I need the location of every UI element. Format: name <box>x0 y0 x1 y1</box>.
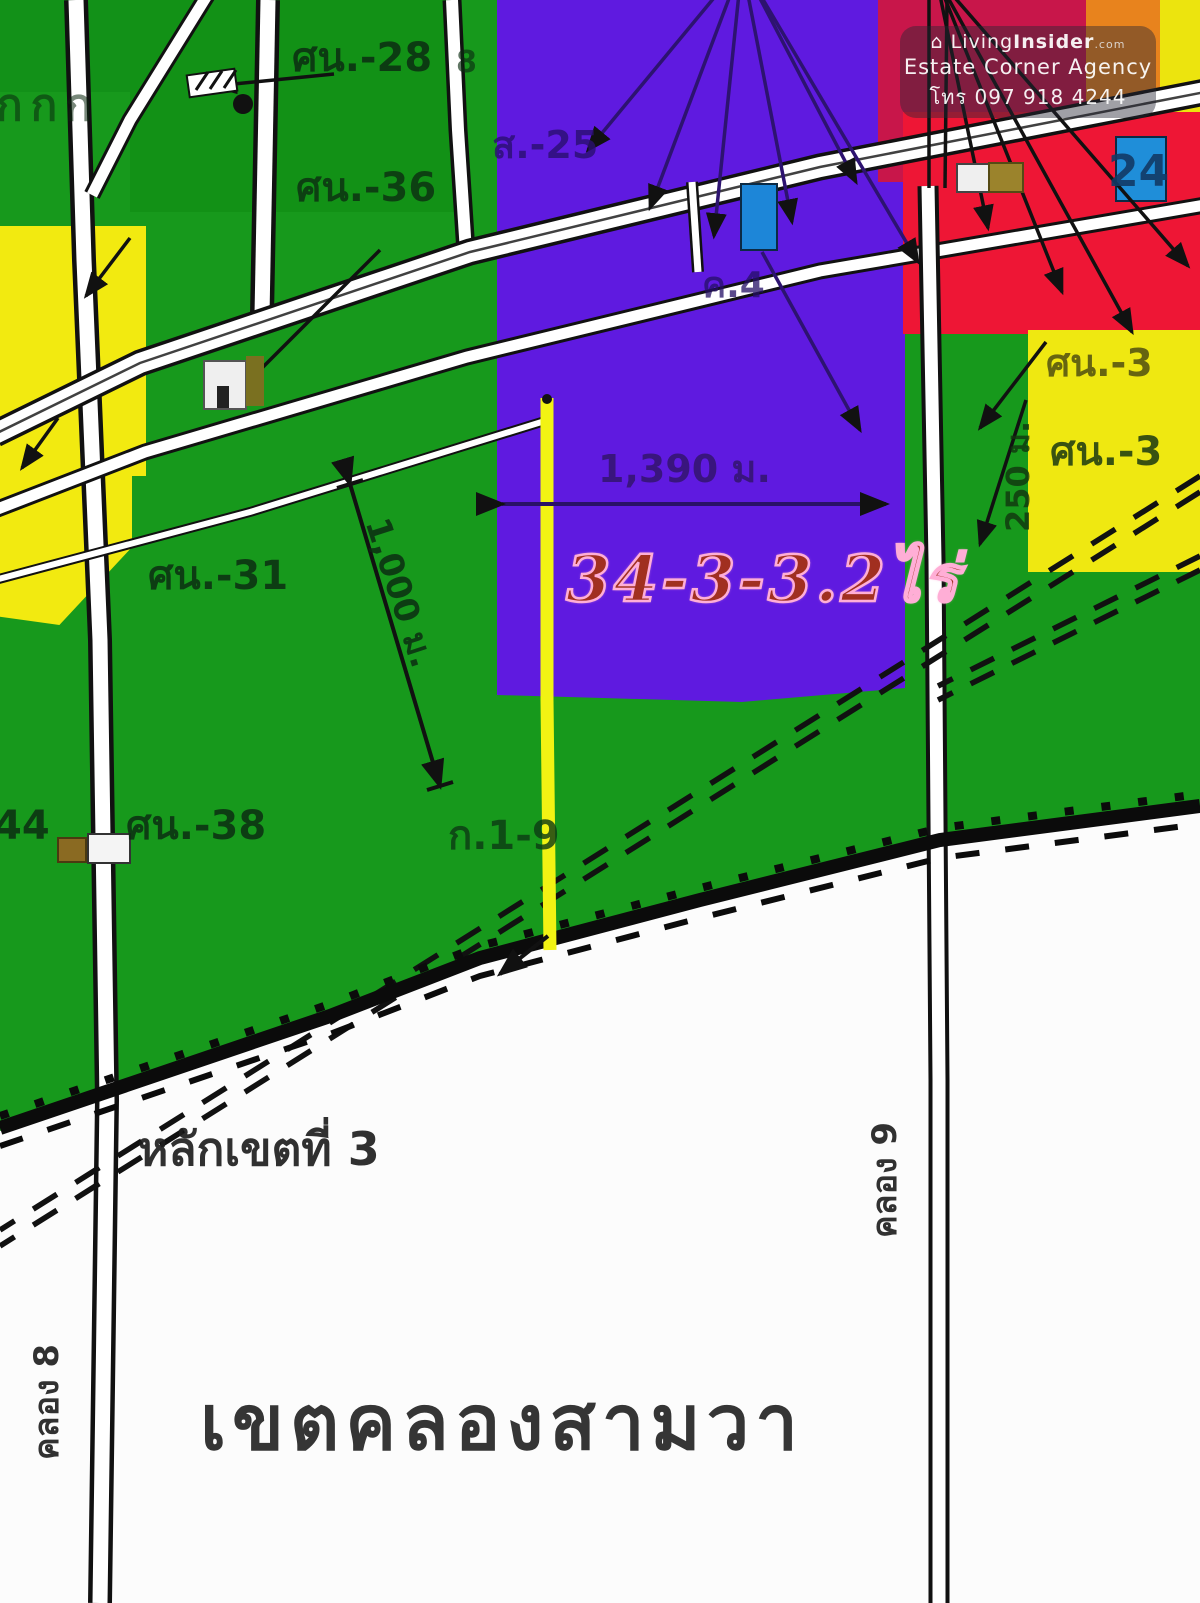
label-district: เขตคลองสามวา <box>200 1385 804 1461</box>
watermark-agency: Estate Corner Agency <box>904 55 1152 79</box>
label-sn-3-green: ศน.-3 <box>1050 432 1162 472</box>
zoning-map: กกกศน.-28ศน.-368ส.-25ค.4241,390 ม.ศน.-31… <box>0 0 1200 1603</box>
label-sn-38: ศน.-38 <box>126 806 266 846</box>
label-sn-31: ศน.-31 <box>148 556 288 596</box>
label-k-4: ค.4 <box>702 268 765 304</box>
watermark-phone: โทร 097 918 4244 <box>930 81 1127 113</box>
watermark-card: ⌂ LivingInsider.com Estate Corner Agency… <box>900 26 1156 118</box>
label-sn-3-yellow: ศน.-3 <box>1046 344 1153 382</box>
label-khlong-9: คลอง 9 <box>868 1122 902 1238</box>
watermark-brand: ⌂ LivingInsider.com <box>931 31 1126 53</box>
label-s-25: ส.-25 <box>492 126 598 164</box>
label-1390-m: 1,390 ม. <box>598 450 771 488</box>
label-k-1-9: ก.1-9 <box>448 816 560 856</box>
brand-tld: .com <box>1094 38 1125 51</box>
house-icon: ⌂ <box>931 31 944 53</box>
map-labels: กกกศน.-28ศน.-368ส.-25ค.4241,390 ม.ศน.-31… <box>0 0 1200 1603</box>
brand-suffix: Insider <box>1013 31 1094 53</box>
label-khlong-8: คลอง 8 <box>30 1344 64 1460</box>
plot-area-label: 34-3-3.2ไร่ <box>566 548 961 612</box>
label-1000-m: 1,000 ม. <box>360 514 440 672</box>
label-sn-36: ศน.-36 <box>296 168 436 208</box>
label-border-post: หลักเขตที่ 3 <box>138 1126 380 1172</box>
label-24: 24 <box>1108 150 1169 194</box>
label-44: 44 <box>0 806 50 846</box>
label-8: 8 <box>456 48 477 78</box>
label-kkk: กกก <box>0 84 100 128</box>
label-sn-28: ศน.-28 <box>292 38 432 78</box>
label-250-m: 250 ม. <box>1002 421 1034 532</box>
brand-prefix: Living <box>951 31 1014 53</box>
